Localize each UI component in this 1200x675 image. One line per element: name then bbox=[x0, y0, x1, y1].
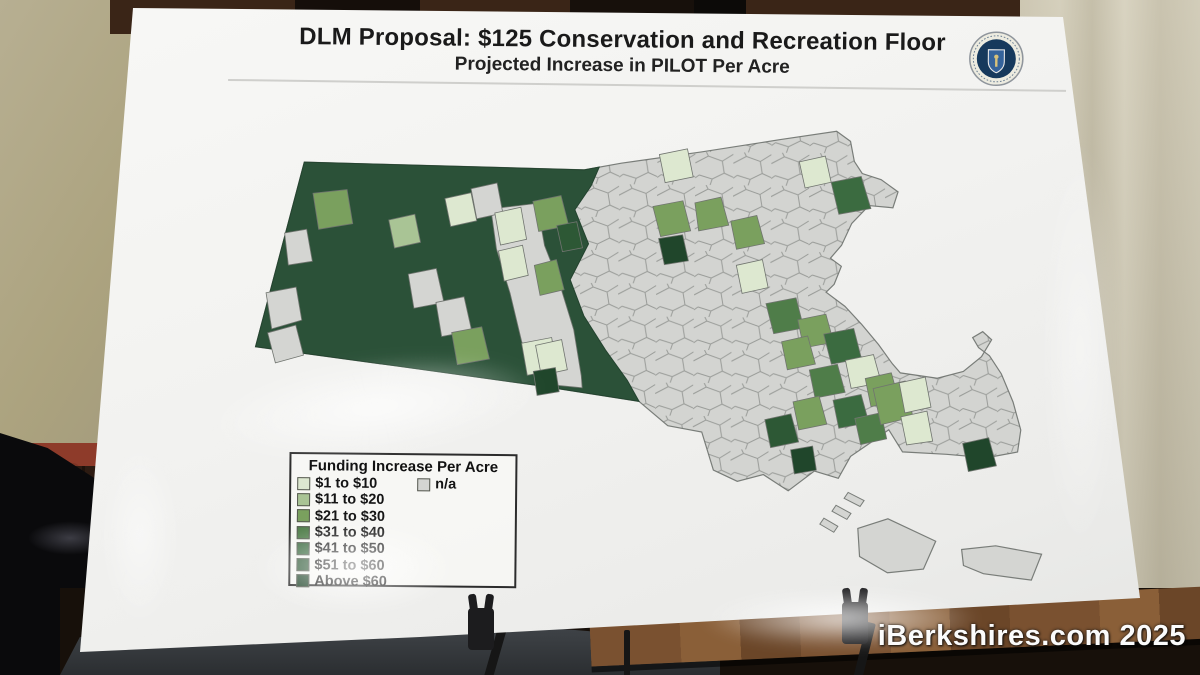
easel-clip bbox=[468, 608, 494, 650]
map-legend: Funding Increase Per Acre $1 to $10 $11 … bbox=[288, 452, 517, 588]
legend-swatch bbox=[417, 478, 430, 491]
divider-line bbox=[228, 79, 1066, 92]
legend-title: Funding Increase Per Acre bbox=[297, 457, 509, 476]
watermark: iBerkshires.com 2025 bbox=[878, 620, 1186, 653]
poster-board: DLM Proposal: $125 Conservation and Recr… bbox=[0, 0, 1200, 675]
legend-swatch bbox=[297, 526, 310, 539]
legend-item-na: n/a bbox=[417, 476, 456, 493]
legend-swatch bbox=[297, 493, 310, 506]
massachusetts-state-seal-icon bbox=[968, 31, 1025, 88]
legend-swatch bbox=[296, 575, 309, 588]
legend-swatch bbox=[297, 542, 310, 555]
nantucket bbox=[961, 545, 1041, 580]
easel-clip bbox=[842, 602, 868, 644]
legend-swatch bbox=[297, 509, 310, 522]
legend-item: $41 to $50 bbox=[297, 540, 417, 557]
legend-item: Above $60 bbox=[296, 573, 416, 590]
legend-swatch bbox=[297, 477, 310, 490]
legend-item: $51 to $60 bbox=[296, 557, 416, 574]
legend-item: $11 to $20 bbox=[297, 491, 417, 508]
photo-of-map-poster: DLM Proposal: $125 Conservation and Recr… bbox=[0, 0, 1200, 675]
legend-item: $21 to $30 bbox=[297, 508, 417, 525]
legend-swatch bbox=[296, 558, 309, 571]
legend-item: $1 to $10 bbox=[297, 475, 417, 492]
marthas-vineyard bbox=[857, 518, 936, 573]
islands bbox=[819, 492, 1042, 580]
legend-item: $31 to $40 bbox=[297, 524, 417, 541]
easel-leg bbox=[624, 630, 630, 675]
